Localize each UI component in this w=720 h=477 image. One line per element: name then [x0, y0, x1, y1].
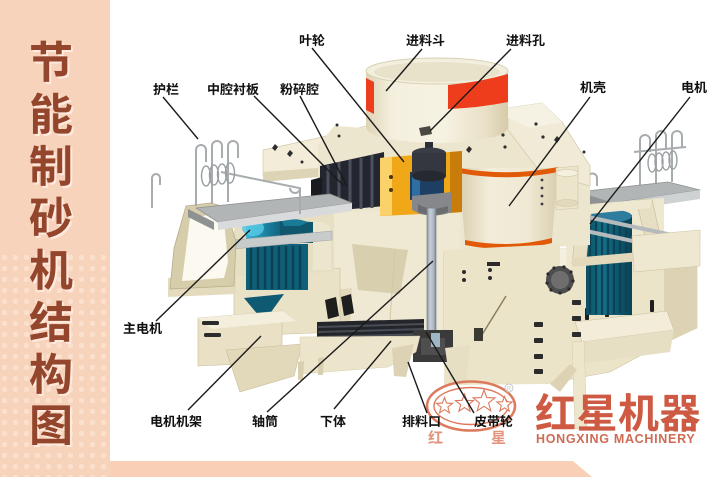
svg-text:HONGXING MACHINERY: HONGXING MACHINERY [536, 432, 695, 446]
svg-text:R: R [507, 387, 512, 393]
